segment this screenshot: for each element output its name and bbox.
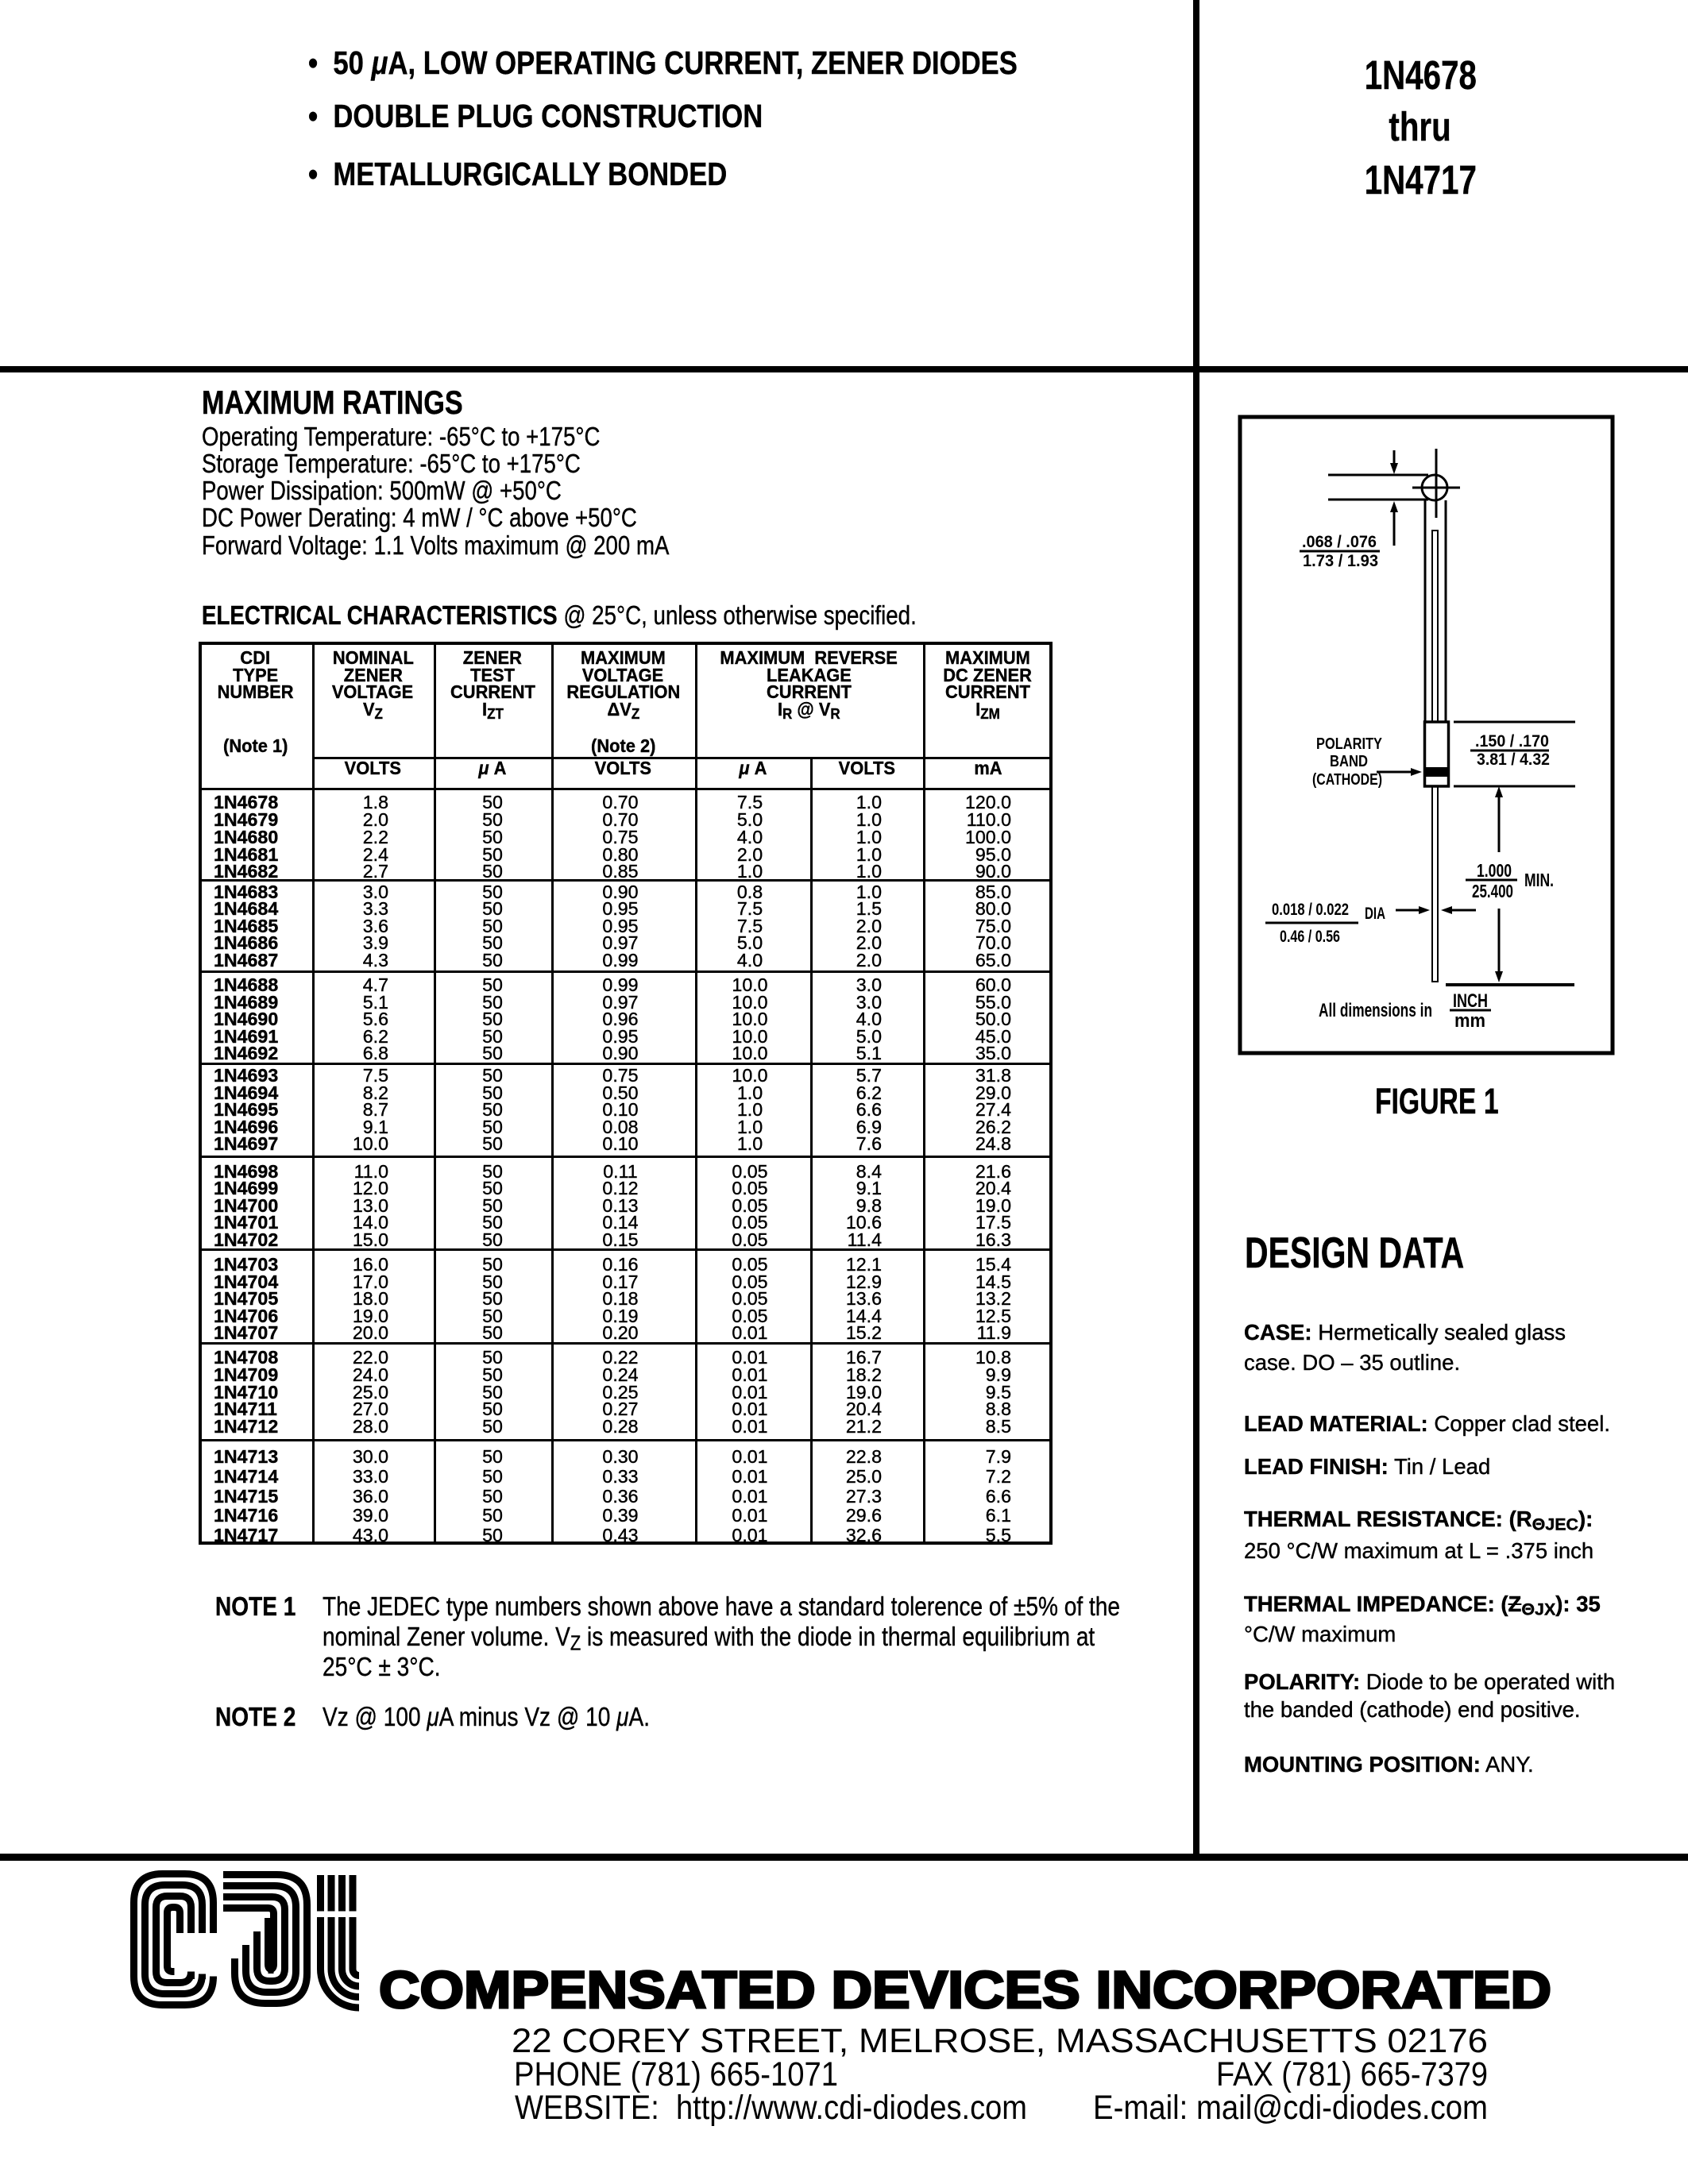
svg-text:COMPENSATED DEVICES INCORPORAT: COMPENSATED DEVICES INCORPORATED: [379, 1960, 1551, 2019]
svg-text:PHONE (781) 665-1071: PHONE (781) 665-1071: [514, 2055, 838, 2093]
svg-text:FAX (781) 665-7379: FAX (781) 665-7379: [1216, 2055, 1488, 2093]
svg-text:22 COREY STREET, MELROSE, MASS: 22 COREY STREET, MELROSE, MASSACHUSETTS …: [512, 2022, 1488, 2060]
svg-text:E-mail: mail@cdi-diodes.com: E-mail: mail@cdi-diodes.com: [1093, 2089, 1488, 2127]
svg-text:WEBSITE: http://www.cdi-diode: WEBSITE: http://www.cdi-diodes.com: [515, 2089, 1027, 2127]
